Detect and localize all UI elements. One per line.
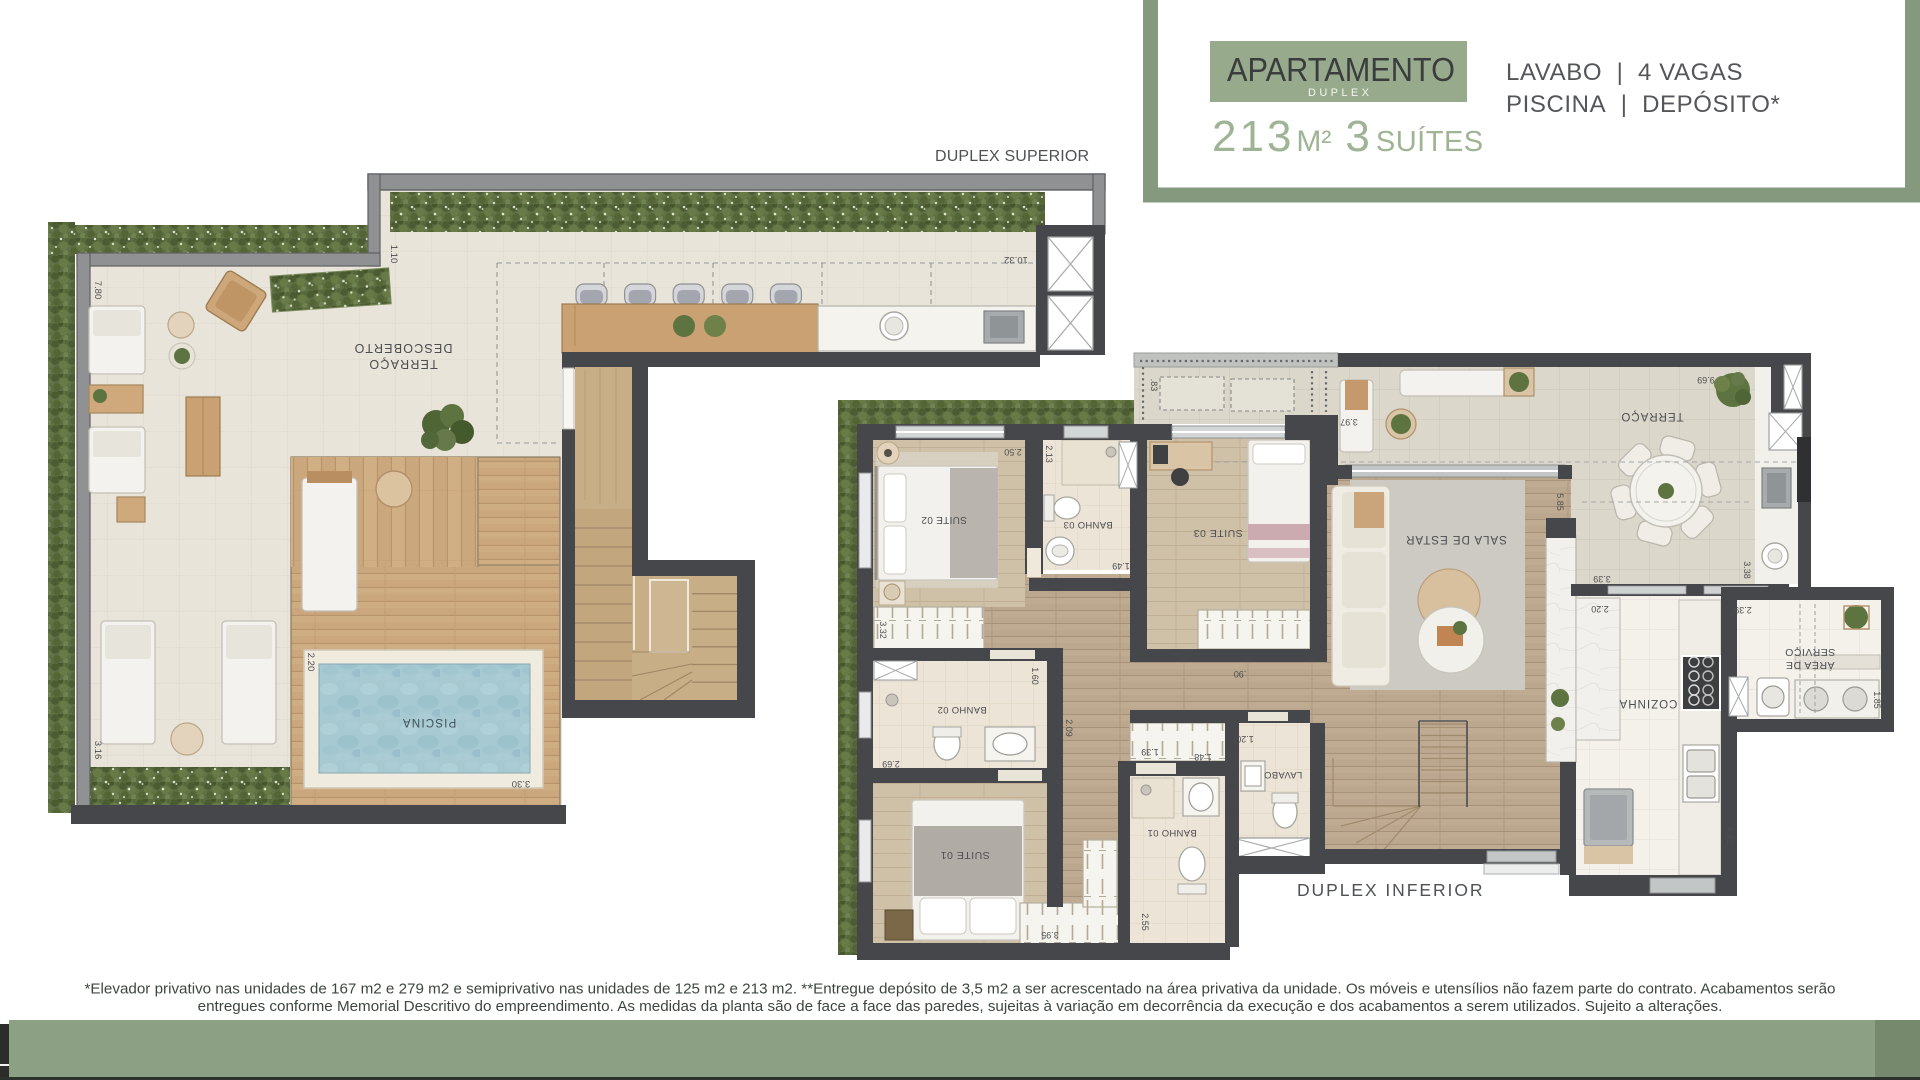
svg-text:TERRAÇO: TERRAÇO — [1620, 410, 1683, 422]
svg-text:1.48: 1.48 — [1194, 752, 1212, 762]
svg-text:4.42: 4.42 — [1725, 826, 1735, 844]
svg-text:2.50: 2.50 — [1004, 447, 1022, 457]
svg-text:SUITE 02: SUITE 02 — [921, 514, 967, 525]
svg-text:1.10: 1.10 — [388, 245, 399, 264]
svg-text:SALA DE ESTAR: SALA DE ESTAR — [1405, 533, 1507, 545]
svg-text:1.85: 1.85 — [1872, 691, 1882, 709]
svg-text:DUPLEX INFERIOR: DUPLEX INFERIOR — [1297, 880, 1485, 900]
svg-text:PISCINA: PISCINA — [402, 716, 456, 728]
svg-text:DUPLEX: DUPLEX — [1308, 87, 1374, 99]
svg-text:BANHO 02: BANHO 02 — [937, 704, 986, 715]
svg-text:APARTAMENTO: APARTAMENTO — [1227, 51, 1455, 88]
svg-text:LAVABO: LAVABO — [1264, 769, 1302, 780]
svg-text:COZINHA: COZINHA — [1619, 697, 1678, 709]
svg-text:TERRAÇO: TERRAÇO — [368, 357, 438, 371]
svg-text:SUITE 03: SUITE 03 — [1193, 527, 1243, 539]
svg-text:1.60: 1.60 — [1030, 667, 1040, 685]
svg-text:2.39: 2.39 — [1734, 605, 1752, 615]
svg-text:9.69: 9.69 — [1697, 375, 1715, 385]
svg-text:DESCOBERTO: DESCOBERTO — [353, 341, 452, 355]
svg-text:2.09: 2.09 — [1064, 719, 1074, 737]
svg-text:ÁREA DE: ÁREA DE — [1785, 659, 1834, 672]
svg-text:7.80: 7.80 — [92, 281, 103, 300]
svg-text:SUITE 01: SUITE 01 — [940, 849, 990, 861]
svg-text:3.39: 3.39 — [1593, 574, 1611, 584]
svg-text:PISCINA | DEPÓSITO*: PISCINA | DEPÓSITO* — [1506, 91, 1780, 118]
svg-text:*Elevador privativo nas unidad: *Elevador privativo nas unidades de 167 … — [85, 981, 1836, 998]
svg-text:2.20: 2.20 — [305, 653, 316, 672]
svg-text:BANHO 03: BANHO 03 — [1063, 519, 1112, 530]
svg-text:.83: .83 — [1149, 379, 1159, 392]
svg-text:3.16: 3.16 — [92, 741, 103, 760]
svg-text:LAVABO | 4 VAGAS: LAVABO | 4 VAGAS — [1506, 59, 1743, 86]
svg-text:.90: .90 — [1234, 669, 1247, 679]
svg-text:3.38: 3.38 — [1742, 561, 1752, 579]
svg-text:3.30: 3.30 — [512, 778, 531, 789]
svg-text:3.32: 3.32 — [878, 621, 888, 639]
svg-text:3.95: 3.95 — [1041, 930, 1059, 940]
svg-text:entregues conforme Memorial De: entregues conforme Memorial Descritivo d… — [198, 998, 1723, 1015]
svg-text:2.69: 2.69 — [882, 759, 900, 769]
svg-text:2.20: 2.20 — [1591, 604, 1609, 614]
svg-text:1.39: 1.39 — [1141, 747, 1159, 757]
svg-text:DUPLEX SUPERIOR: DUPLEX SUPERIOR — [935, 148, 1091, 165]
svg-text:5.85: 5.85 — [1555, 493, 1565, 511]
svg-text:BANHO 01: BANHO 01 — [1147, 827, 1196, 838]
svg-text:213M²3SUÍTES: 213M²3SUÍTES — [1212, 112, 1484, 161]
svg-text:SERVIÇO: SERVIÇO — [1785, 646, 1836, 658]
svg-text:10.32: 10.32 — [1004, 254, 1028, 265]
svg-text:3.97: 3.97 — [1340, 417, 1358, 427]
svg-text:1.49: 1.49 — [1112, 561, 1130, 571]
svg-text:2.13: 2.13 — [1044, 445, 1054, 463]
svg-text:2.55: 2.55 — [1140, 913, 1150, 931]
